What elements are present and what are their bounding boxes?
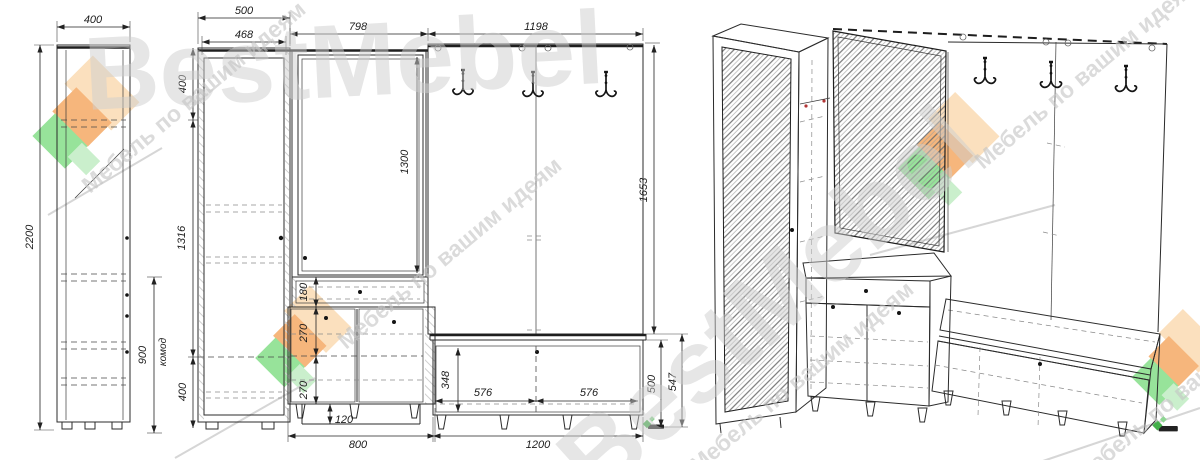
dim-panel-width: 1198 bbox=[524, 21, 549, 33]
brand-logo-swoosh bbox=[175, 378, 315, 458]
coat-hook bbox=[453, 70, 473, 94]
dim-plinth: 120 bbox=[335, 414, 354, 426]
dresser-handle-right bbox=[392, 320, 396, 324]
bench-front-view bbox=[430, 334, 646, 429]
mirror-frame-handle bbox=[303, 256, 307, 260]
brand-logo-diamonds bbox=[1132, 309, 1200, 411]
dim-bench-body-height: 500 bbox=[646, 374, 658, 393]
dim-wardrobe-bottom: 400 bbox=[177, 382, 189, 401]
dim-wardrobe-top: 400 bbox=[177, 74, 189, 93]
door-handle-3d bbox=[790, 228, 794, 232]
coat-hook bbox=[1040, 62, 1061, 87]
mirror-surface-3d bbox=[833, 31, 946, 252]
label-dresser: комод bbox=[158, 337, 169, 366]
dim-mirror-height: 1300 bbox=[399, 149, 411, 174]
dresser-handle-3d bbox=[897, 311, 901, 315]
hook-panel-view bbox=[428, 44, 643, 334]
cabinet-3d bbox=[713, 24, 830, 433]
mirror-door-3d bbox=[722, 47, 791, 412]
hook-panel-3d bbox=[948, 34, 1167, 342]
dim-bench: 348 576 576 1200 500 547 bbox=[433, 334, 688, 451]
watermark-tagline: Мебель по вашим идеям bbox=[333, 152, 567, 354]
mirror-section-view bbox=[290, 50, 428, 307]
dim-mirror-width: 798 bbox=[349, 21, 368, 33]
dim-bench-inner: 348 bbox=[440, 370, 452, 389]
dim-wardrobe-width: 500 bbox=[235, 5, 254, 17]
coat-hook bbox=[596, 72, 616, 96]
dim-bench-left: 576 bbox=[474, 387, 493, 399]
dim-door-top: 270 bbox=[298, 323, 310, 343]
bench-handle-3d bbox=[1038, 362, 1042, 366]
dim-bench-total-height: 547 bbox=[667, 372, 679, 391]
marker-dot bbox=[822, 99, 825, 102]
dim-mirror-section: 798 1300 180 bbox=[290, 21, 428, 307]
bench-3d bbox=[932, 299, 1160, 436]
dresser-handle-left bbox=[324, 316, 328, 320]
text-watermark-layer: BestMebel BestMebel Мебель по вашим идея… bbox=[77, 0, 1200, 460]
dim-hook-panel: 1198 1653 bbox=[428, 21, 660, 334]
dim-side-height: 2200 bbox=[24, 224, 36, 250]
blueprint-page: 400 2200 900 комод 500 468 bbox=[0, 0, 1200, 460]
dim-door-bottom: 270 bbox=[298, 380, 310, 400]
logo-watermark-layer bbox=[32, 56, 1200, 460]
dresser-3d bbox=[803, 253, 951, 422]
brand-logo-diamonds bbox=[32, 56, 139, 176]
dim-side-width: 400 bbox=[84, 14, 103, 26]
dim-wardrobe-door-width: 468 bbox=[235, 29, 254, 41]
drawer-handle bbox=[358, 290, 362, 294]
dim-bench-width: 1200 bbox=[526, 439, 551, 451]
dim-dresser-width: 800 bbox=[349, 439, 368, 451]
dim-drawer-height: 180 bbox=[298, 282, 310, 301]
watermark-tagline: Мебель по вашим идеям bbox=[685, 276, 919, 460]
dim-panel-height: 1653 bbox=[638, 177, 650, 202]
dresser-handle-3d bbox=[831, 305, 835, 309]
marker-dot bbox=[804, 104, 807, 107]
mirror-panel-3d bbox=[833, 29, 1167, 252]
drawer-handle-3d bbox=[864, 289, 868, 293]
furniture-blueprint: 400 2200 900 комод 500 468 bbox=[0, 0, 1200, 460]
door-handle bbox=[279, 236, 283, 240]
coat-hook bbox=[1115, 66, 1136, 91]
coat-hook bbox=[523, 72, 543, 96]
dim-wardrobe-middle: 1316 bbox=[176, 225, 188, 250]
dim-dresser-height: 900 bbox=[137, 345, 149, 364]
coat-hook bbox=[974, 58, 995, 83]
watermark-brand: BestMebel bbox=[81, 0, 607, 133]
dim-bench-right: 576 bbox=[580, 387, 599, 399]
